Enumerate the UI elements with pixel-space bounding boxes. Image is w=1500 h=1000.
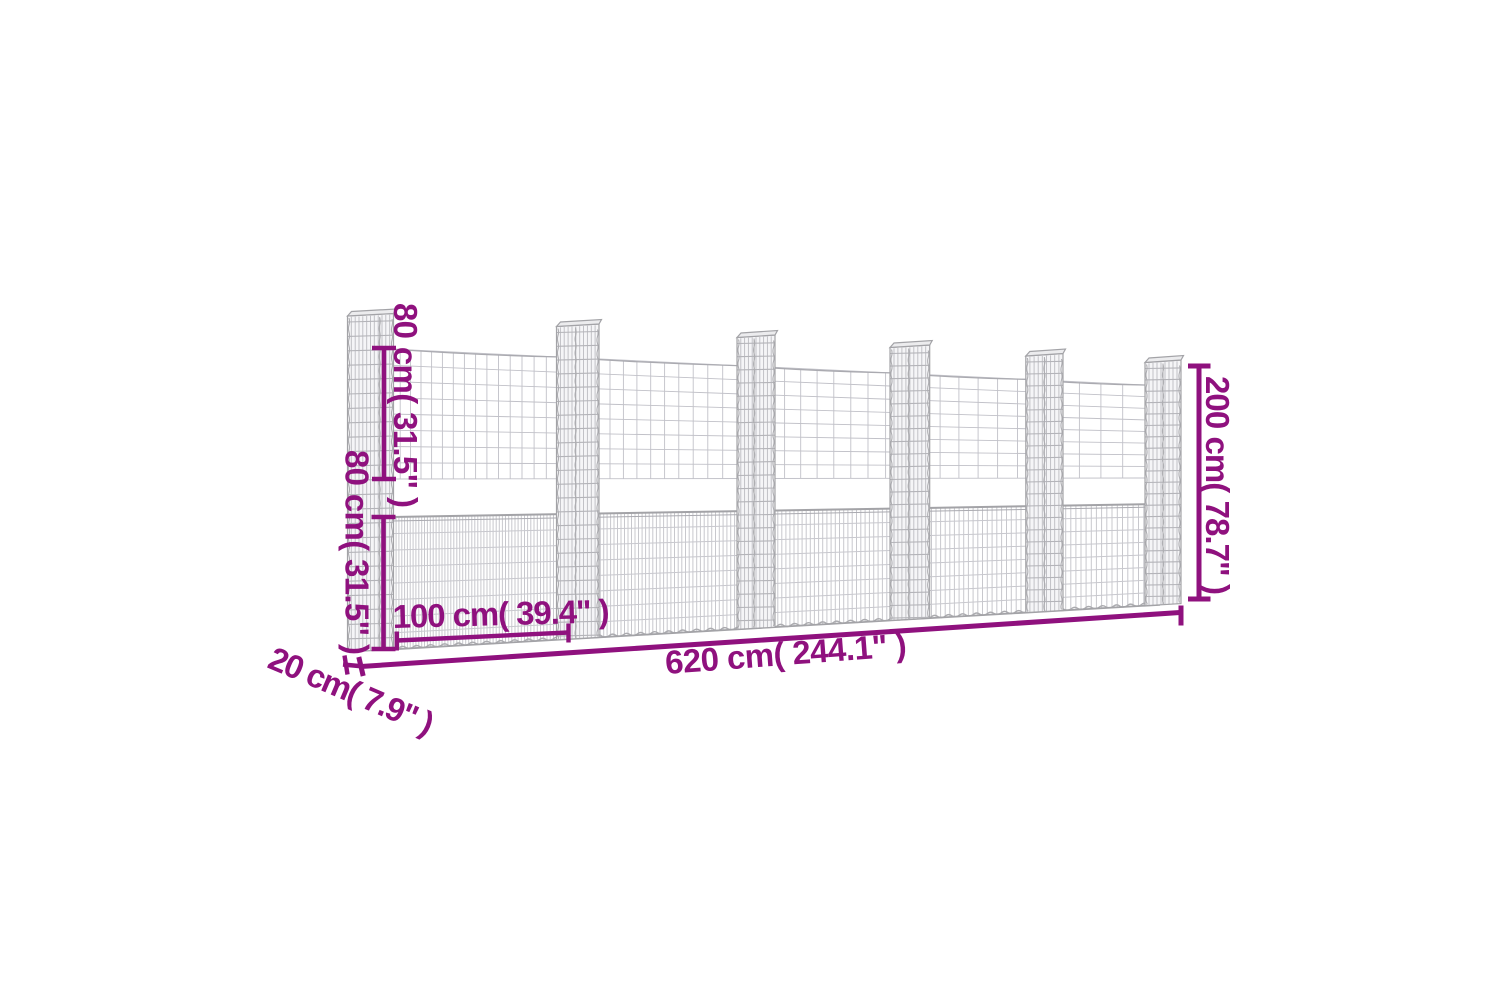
svg-text:80 cm( 31.5" ): 80 cm( 31.5" ) xyxy=(339,450,376,655)
svg-text:200 cm( 78.7" ): 200 cm( 78.7" ) xyxy=(1199,376,1236,595)
svg-text:100 cm( 39.4" ): 100 cm( 39.4" ) xyxy=(392,592,610,635)
svg-text:80 cm( 31.5" ): 80 cm( 31.5" ) xyxy=(387,303,424,508)
